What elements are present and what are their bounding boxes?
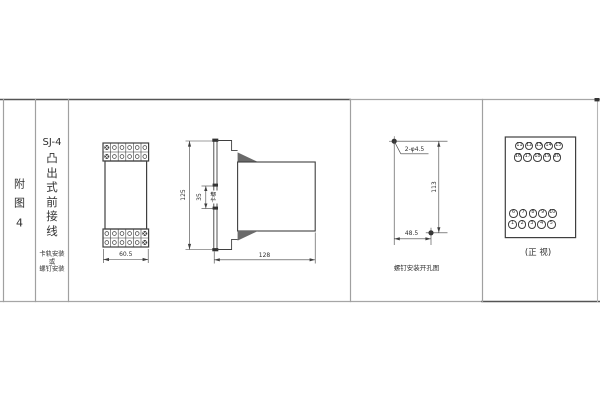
terminal-number: 17 (525, 155, 531, 160)
height-dim-label: 125 (181, 189, 187, 200)
mounting-note: 卡轨安装 或 螺钉安装 (39, 251, 64, 274)
line-art (0, 0, 600, 400)
figure-label-char: 4 (16, 218, 23, 229)
horizontal-hole-dimension (394, 237, 431, 240)
model-label: SJ-4 (43, 138, 62, 148)
width-dim-label: 60.5 (119, 252, 132, 258)
terminal-number: 11 (516, 144, 522, 149)
terminal-circle: 15 (554, 142, 563, 151)
top-bracket (217, 141, 238, 151)
terminal-number: 13 (536, 144, 542, 149)
terminal-circle: 18 (533, 153, 542, 162)
mounting-hole-bottom (426, 228, 448, 245)
relay-body-side (238, 162, 316, 231)
terminal-circle: 16 (514, 153, 523, 162)
front-view-caption: (正 视) (525, 248, 551, 257)
slot-dim-label: 35 (197, 193, 203, 201)
terminal-circle: 19 (543, 153, 552, 162)
terminal-circle: 11 (515, 142, 524, 151)
terminal-number: 16 (515, 155, 521, 160)
vertical-dim-label: 113 (432, 181, 438, 192)
terminal-number: 1 (511, 222, 514, 227)
terminal-circle: 20 (553, 153, 562, 162)
terminal-number: 6 (512, 211, 515, 216)
bottom-bracket (217, 239, 238, 249)
terminal-circle: 8 (529, 209, 538, 218)
terminal-circle: 4 (537, 220, 546, 229)
top-gusset (238, 152, 258, 162)
terminal-circle: 3 (528, 220, 537, 229)
front-outline-drawing (103, 143, 149, 263)
terminal-circle: 6 (509, 209, 518, 218)
terminal-number: 20 (554, 155, 560, 160)
terminal-number: 15 (555, 144, 561, 149)
terminal-number: 12 (526, 144, 532, 149)
terminal-number: 7 (522, 211, 525, 216)
terminal-number: 8 (531, 211, 534, 216)
frame-corner-mark (595, 98, 600, 101)
terminal-circle: 10 (548, 209, 557, 218)
type-label-vertical: 凸出式前接线 (44, 151, 60, 239)
terminal-number: 4 (540, 222, 543, 227)
side-outline-drawing (186, 139, 316, 264)
slot-name-label: 卡槽 (213, 190, 219, 203)
relay-body-front (105, 161, 147, 229)
drill-view-caption: 螺钉安装开孔图 (394, 265, 440, 272)
depth-dimension (214, 233, 315, 264)
horizontal-dim-label: 48.5 (405, 231, 418, 237)
figure-label-char: 附 (14, 179, 25, 190)
terminal-circle: 1 (508, 220, 517, 229)
terminal-circle: 14 (544, 142, 553, 151)
figure-label-char: 图 (14, 198, 25, 209)
terminal-circle: 9 (538, 209, 547, 218)
terminal-number: 19 (544, 155, 550, 160)
terminal-number: 14 (546, 144, 552, 149)
depth-dim-label: 128 (259, 253, 270, 259)
bottom-gusset (238, 231, 258, 241)
hole-spec-label: 2-φ4.5 (405, 147, 424, 153)
terminal-number: 18 (534, 155, 540, 160)
terminal-circle: 5 (547, 220, 556, 229)
terminal-number: 10 (549, 211, 555, 216)
terminal-number: 3 (530, 222, 533, 227)
terminal-number: 9 (541, 211, 544, 216)
terminal-circle: 17 (523, 153, 532, 162)
terminal-number: 2 (521, 222, 524, 227)
terminal-number: 5 (550, 222, 553, 227)
table-frame (0, 98, 600, 302)
drawing-sheet: 附 图 4 SJ-4 凸出式前接线 卡轨安装 或 螺钉安装 60.5 125 3… (0, 0, 600, 400)
